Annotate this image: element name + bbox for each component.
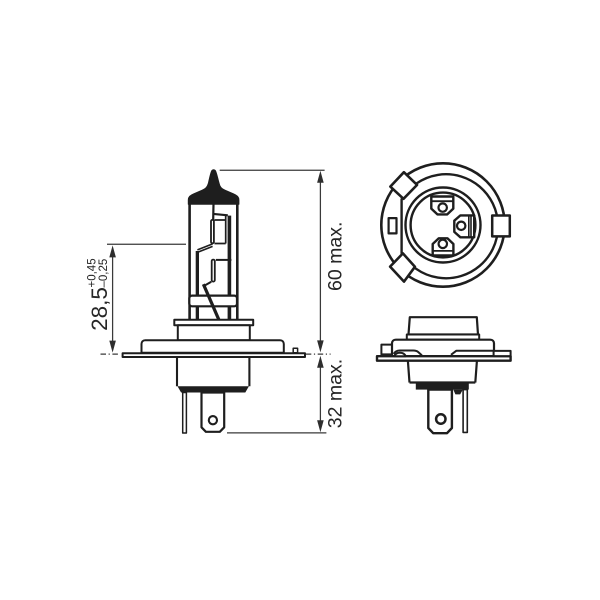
svg-text:32 max.: 32 max. bbox=[324, 359, 346, 428]
svg-text:–0,25: –0,25 bbox=[98, 259, 110, 288]
svg-text:28,5: 28,5 bbox=[87, 287, 112, 331]
svg-text:60 max.: 60 max. bbox=[324, 222, 346, 291]
svg-text:+0,45: +0,45 bbox=[86, 258, 98, 287]
